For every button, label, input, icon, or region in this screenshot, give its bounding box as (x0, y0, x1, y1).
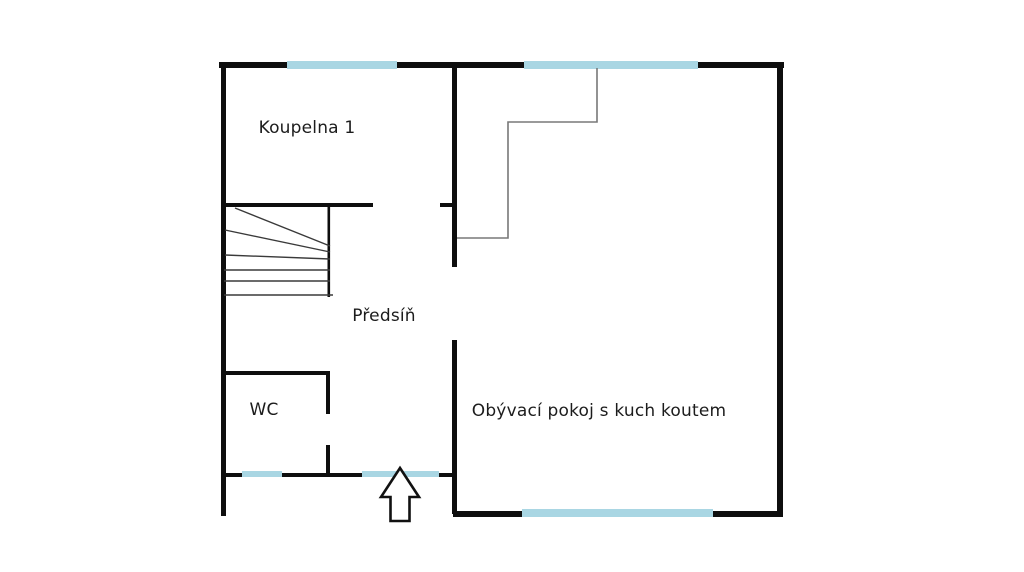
window-bottom-living (522, 509, 713, 517)
wall-hall-living-upper (452, 62, 457, 267)
stair-tread-line (225, 255, 330, 259)
kitchen-partition-line (457, 68, 597, 238)
staircase (224, 205, 333, 297)
room-label-wc: WC (249, 400, 278, 420)
wall-bottom-living-segment (453, 511, 522, 517)
wall-bottom-hall-segment (221, 473, 242, 477)
wall-wc-right-upper (326, 371, 330, 414)
window-top-bathroom (287, 61, 397, 69)
floorplan-canvas: Koupelna 1 Předsíň WC Obývací pokoj s ku… (0, 0, 1024, 572)
stair-tread-line (225, 230, 330, 252)
room-label-hallway: Předsíň (352, 306, 416, 326)
room-label-living-room: Obývací pokoj s kuch koutem (472, 401, 727, 421)
room-label-bathroom: Koupelna 1 (259, 118, 356, 138)
stair-tread-line (235, 208, 330, 246)
wall-hall-living-lower (452, 340, 457, 514)
wall-left (221, 62, 226, 516)
wall-wc-right-lower (326, 445, 330, 475)
wall-bathroom-bottom (221, 203, 373, 207)
wall-wc-top (221, 371, 330, 375)
floorplan-drawing: Koupelna 1 Předsíň WC Obývací pokoj s ku… (0, 0, 1024, 572)
wall-bottom-hall-segment (282, 473, 362, 477)
wall-right (777, 62, 783, 517)
window-top-living (524, 61, 698, 69)
wall-bathroom-bottom-stub (440, 203, 457, 207)
wall-bottom-living-segment (713, 511, 783, 517)
window-bottom-wc (242, 471, 282, 477)
